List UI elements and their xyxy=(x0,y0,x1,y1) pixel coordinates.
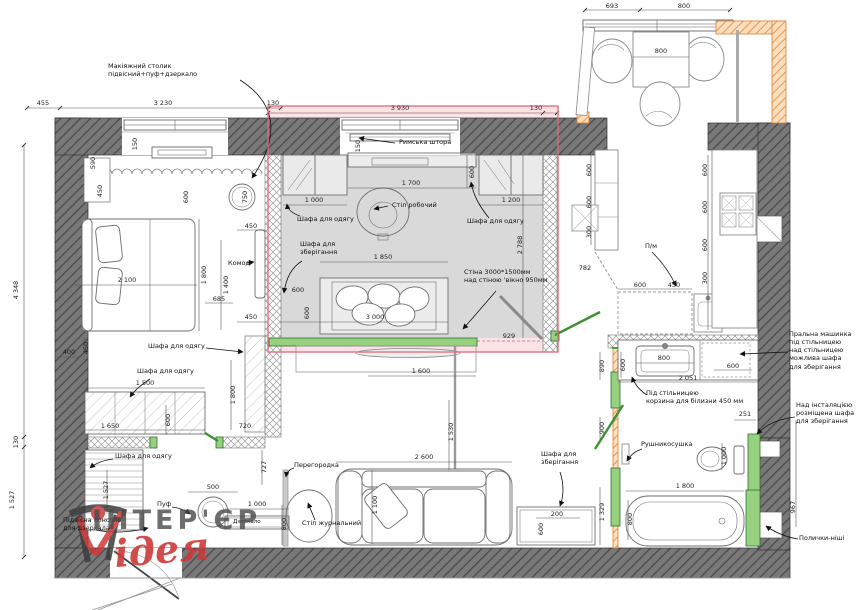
dim-1850: 1 850 xyxy=(374,253,393,261)
dining-inner-wall xyxy=(736,30,739,122)
dim-3930: 3 930 xyxy=(391,104,410,112)
dim-450-bed-top: 450 xyxy=(96,185,104,197)
dim-3230: 3 230 xyxy=(154,99,173,107)
label-wardrobe-bedroom: Шафа для одягу xyxy=(148,342,205,350)
dim-300-kr: 300 xyxy=(701,272,709,284)
dim-929: 929 xyxy=(503,332,515,340)
label-laundry-note: Під стільницею корзина для білизни 450 м… xyxy=(646,389,743,405)
dim-800-table: 800 xyxy=(655,47,667,55)
dim-500-pouf: 500 xyxy=(207,483,219,491)
label-wardrobe-hall-top: Шафа для одягу xyxy=(137,367,194,375)
dim-450-kb: 450 xyxy=(668,281,680,289)
dim-600-kr3: 600 xyxy=(701,239,709,251)
dim-782: 782 xyxy=(579,264,591,272)
label-wardrobe-study-left: Шафа для одягу xyxy=(297,215,354,223)
dim-130-top: 130 xyxy=(267,99,279,107)
dim-1800-hall: 1 800 xyxy=(229,386,237,405)
label-storage-study: Шафа для зберігання xyxy=(300,240,337,256)
label-wall-note: Стіна 3000*1500мм над стіною 'вікно 950м… xyxy=(464,268,548,284)
dim-2600-sofa: 2 600 xyxy=(415,453,434,461)
dim-2788: 2 788 xyxy=(516,236,524,255)
floor-plan: 455 3 230 130 3 930 130 693 800 800 4 34… xyxy=(0,0,865,610)
label-niche-shelves: Полички-ніші xyxy=(799,534,844,542)
dim-1500: 1 500 xyxy=(136,379,155,387)
coffee-table xyxy=(286,490,332,542)
komod-chest xyxy=(255,230,265,298)
dim-600-vanity: 600 xyxy=(619,359,627,371)
dim-600-desk: 600 xyxy=(468,166,476,178)
dim-200-stand: 200 xyxy=(551,510,563,518)
label-roman-blind: Римська штора xyxy=(399,138,451,146)
dim-4348: 4 348 xyxy=(12,281,20,300)
radiator xyxy=(92,169,262,174)
dim-800-console: 800 xyxy=(280,518,288,530)
dim-1000-wc: 1 000 xyxy=(720,447,728,466)
dim-800-top: 800 xyxy=(678,2,690,10)
kitchen xyxy=(572,150,757,334)
dim-1650: 1 650 xyxy=(101,422,120,430)
dim-3000: 3 000 xyxy=(366,313,385,321)
washing-machine xyxy=(702,343,750,377)
dim-150-window: 150 xyxy=(131,138,139,150)
dim-1100-sofa: 1 100 xyxy=(371,496,379,515)
watermark-sub: ідея xyxy=(112,523,211,576)
dining-table xyxy=(633,32,689,87)
dim-600-kr2: 600 xyxy=(701,201,709,213)
living-furniture xyxy=(286,469,595,545)
dim-727: 727 xyxy=(260,461,268,473)
dim-967: 967 xyxy=(789,501,797,513)
exterior-lines xyxy=(55,578,790,610)
label-coffee-table: Стіл журнальний xyxy=(302,519,361,527)
dim-600-kl1: 600 xyxy=(585,164,593,176)
dim-590: 590 xyxy=(89,157,97,169)
bedroom-furniture xyxy=(82,158,265,432)
label-partition: Перегородка xyxy=(294,461,339,469)
dim-2100-bed: 2 100 xyxy=(118,276,137,284)
dim-685: 685 xyxy=(213,295,225,303)
label-inst-note: Над інсталяцією розміщена шафа для збері… xyxy=(796,401,854,425)
label-makeup-table: Макіяжний столик підвісний+пуф+дзеркало xyxy=(108,62,197,78)
dim-1400: 1 400 xyxy=(222,276,230,295)
label-washer-note: Пральна машинка під стільницею над стіль… xyxy=(789,330,852,371)
label-storage-living: Шафа для зберігання xyxy=(541,450,578,466)
towel-dryer xyxy=(622,444,629,464)
dim-900: 900 xyxy=(598,422,606,434)
dim-1800-bed: 1 800 xyxy=(200,266,208,285)
dim-600-kr1: 600 xyxy=(701,164,709,176)
dim-1800-tub: 1 800 xyxy=(676,482,695,490)
dim-1600-tv: 1 600 xyxy=(412,367,431,375)
dim-600-bench-b: 600 xyxy=(303,307,311,319)
dim-450-left: 450 xyxy=(82,342,90,354)
bedroom-wardrobe xyxy=(245,336,265,432)
dim-693: 693 xyxy=(606,2,618,10)
dim-300-kl: 300 xyxy=(585,226,593,238)
dim-251: 251 xyxy=(739,410,751,418)
dim-800-sink: 800 xyxy=(658,354,670,362)
dim-750-lamp: 750 xyxy=(241,191,249,203)
dim-450-komod-bot: 450 xyxy=(245,313,257,321)
dim-720: 720 xyxy=(239,422,251,430)
dim-1200-wardrobe: 1 200 xyxy=(502,196,521,204)
dim-130-pink: 130 xyxy=(530,104,542,112)
dim-2051: 2 051 xyxy=(679,374,698,382)
dim-150-blind: 150 xyxy=(354,140,362,152)
dim-890: 890 xyxy=(598,360,606,372)
dim-130-left: 130 xyxy=(12,436,20,448)
dining-window xyxy=(583,20,733,31)
dim-450-komod-top: 450 xyxy=(245,222,257,230)
dim-1700-desk: 1 700 xyxy=(402,179,421,187)
dim-1527-hall: 1 527 xyxy=(102,481,110,500)
dim-600-stand: 600 xyxy=(537,523,545,535)
dim-1329: 1 329 xyxy=(598,503,606,522)
label-komod: Комод xyxy=(228,259,250,267)
dim-600-kl2: 600 xyxy=(585,196,593,208)
dim-400: 400 xyxy=(63,348,75,356)
dim-1530: 1 530 xyxy=(447,423,455,442)
dim-600-hall-door: 600 xyxy=(164,414,172,426)
dim-600-bed: 600 xyxy=(182,191,190,203)
label-desk: Стіл робочий xyxy=(392,201,437,209)
label-wardrobe-hall-bottom: Шафа для одягу xyxy=(115,452,172,460)
label-wardrobe-study-right: Шафа для одягу xyxy=(467,217,524,225)
label-towel-dryer: Рушникосушка xyxy=(641,440,692,448)
dim-1527-left: 1 527 xyxy=(8,491,16,510)
dim-600-washer: 600 xyxy=(727,362,739,370)
dim-1000-wardrobe: 1 000 xyxy=(305,196,324,204)
dim-455: 455 xyxy=(37,99,49,107)
dim-600-kb: 600 xyxy=(634,281,646,289)
dim-600-bench-a: 600 xyxy=(292,286,304,294)
label-dishwasher: П/м xyxy=(645,242,657,250)
dim-800-tub: 800 xyxy=(626,513,634,525)
